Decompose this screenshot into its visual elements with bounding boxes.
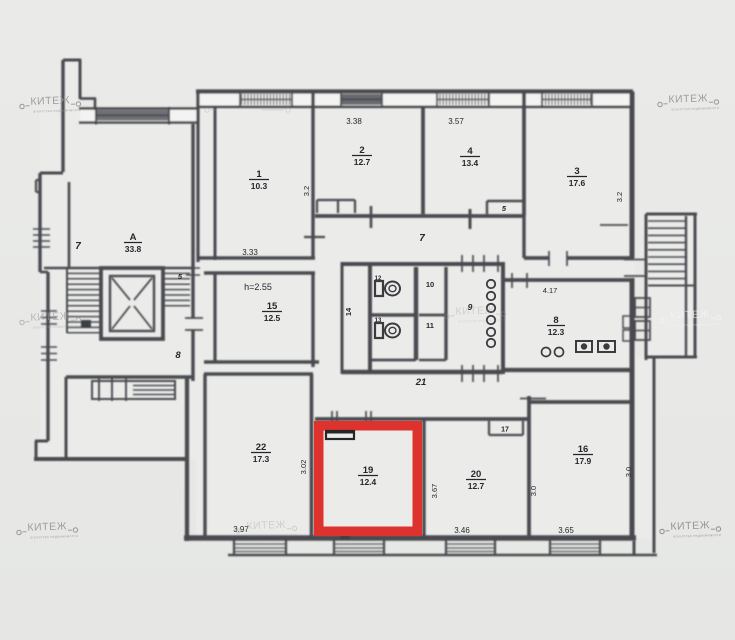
svg-text:3.02: 3.02 (299, 460, 308, 475)
svg-text:3.46: 3.46 (454, 526, 470, 535)
svg-text:3.33: 3.33 (242, 248, 258, 257)
svg-text:3.57: 3.57 (448, 117, 464, 126)
svg-text:3.0: 3.0 (624, 467, 633, 477)
svg-text:3.65: 3.65 (558, 526, 574, 535)
svg-text:3: 3 (574, 166, 579, 177)
svg-text:12.5: 12.5 (264, 313, 281, 323)
svg-text:15: 15 (267, 301, 278, 312)
svg-text:20: 20 (471, 469, 482, 480)
svg-text:33.8: 33.8 (125, 244, 142, 254)
svg-text:21: 21 (415, 377, 427, 388)
svg-text:А: А (130, 232, 137, 243)
svg-text:4: 4 (467, 146, 473, 157)
svg-text:12.7: 12.7 (468, 481, 485, 491)
svg-text:11: 11 (426, 321, 434, 330)
svg-text:3.2: 3.2 (615, 192, 624, 202)
svg-text:10.3: 10.3 (251, 181, 268, 191)
svg-text:8: 8 (175, 350, 181, 361)
svg-text:17: 17 (501, 427, 509, 434)
svg-text:7: 7 (75, 241, 81, 252)
svg-text:3.0: 3.0 (529, 486, 538, 496)
svg-text:12.3: 12.3 (548, 327, 565, 337)
svg-text:8: 8 (553, 315, 558, 326)
svg-text:22: 22 (256, 442, 267, 453)
svg-text:13.4: 13.4 (462, 158, 479, 168)
svg-text:3.2: 3.2 (302, 186, 311, 196)
svg-text:12.4: 12.4 (360, 477, 377, 487)
svg-text:16: 16 (578, 444, 589, 455)
svg-text:12.7: 12.7 (354, 157, 371, 167)
svg-text:17.9: 17.9 (575, 456, 592, 466)
svg-text:10: 10 (426, 280, 434, 289)
svg-text:19: 19 (363, 465, 374, 476)
svg-text:14: 14 (344, 307, 353, 316)
svg-text:1: 1 (256, 169, 262, 180)
svg-text:17.6: 17.6 (569, 178, 586, 188)
svg-text:17.3: 17.3 (253, 454, 270, 464)
svg-text:h=2.55: h=2.55 (244, 282, 272, 292)
svg-text:2: 2 (359, 145, 364, 156)
svg-text:3.67: 3.67 (430, 484, 439, 499)
svg-text:7: 7 (419, 233, 425, 244)
svg-text:4.17: 4.17 (543, 286, 558, 295)
svg-text:3.38: 3.38 (346, 117, 362, 126)
